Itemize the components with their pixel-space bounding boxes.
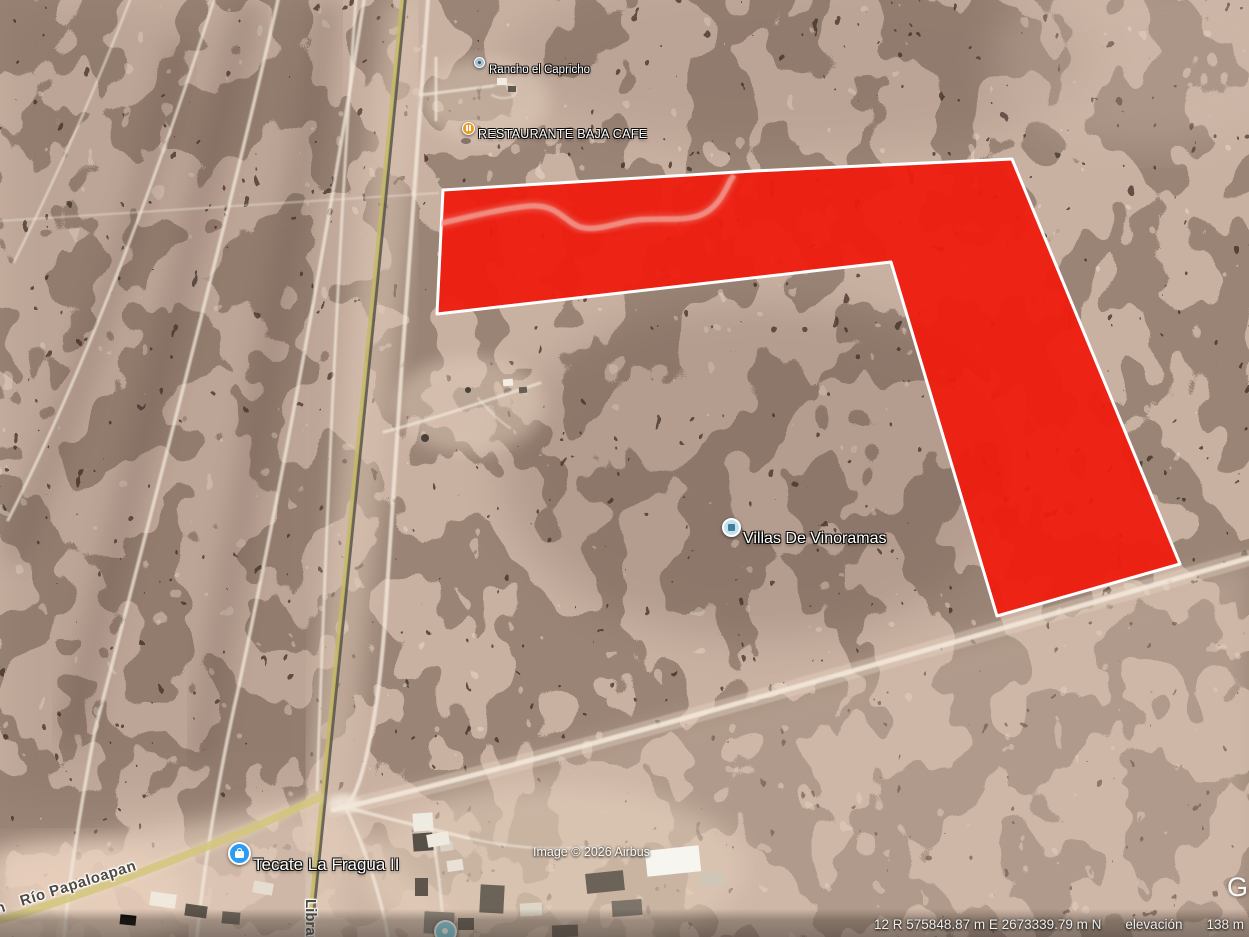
place-pin-store-icon[interactable]	[228, 842, 251, 865]
shopping-bag-icon	[235, 851, 244, 858]
fork-knife-icon	[469, 125, 471, 131]
place-label-villas[interactable]: Villas De Vinoramas	[743, 530, 886, 548]
place-pin-villas-icon[interactable]	[722, 518, 741, 537]
elevation-label: elevación	[1125, 917, 1182, 932]
google-logo[interactable]: Google	[1227, 872, 1249, 903]
building-icon	[728, 524, 735, 531]
place-pin-restaurant-icon[interactable]	[462, 122, 475, 135]
place-label-tecate[interactable]: Tecate La Fragua II	[253, 855, 399, 875]
imagery-attribution: Image © 2026 Airbus	[533, 845, 650, 859]
place-pin-rancho-icon[interactable]	[474, 57, 485, 68]
map-viewport[interactable]: Rancho el Capricho RESTAURANTE BAJA CAFE…	[0, 0, 1249, 937]
place-label-rancho[interactable]: Rancho el Capricho	[489, 64, 590, 76]
fork-knife-icon	[466, 125, 468, 131]
status-bar-text: 12 R 575848.87 m E 2673339.79 m N elevac…	[874, 917, 1244, 932]
utm-coordinates: 12 R 575848.87 m E 2673339.79 m N	[874, 917, 1101, 932]
place-label-restaurante[interactable]: RESTAURANTE BAJA CAFE	[478, 127, 647, 141]
pin-dot-icon	[478, 61, 481, 64]
elevation-value: 138 m	[1206, 917, 1244, 932]
